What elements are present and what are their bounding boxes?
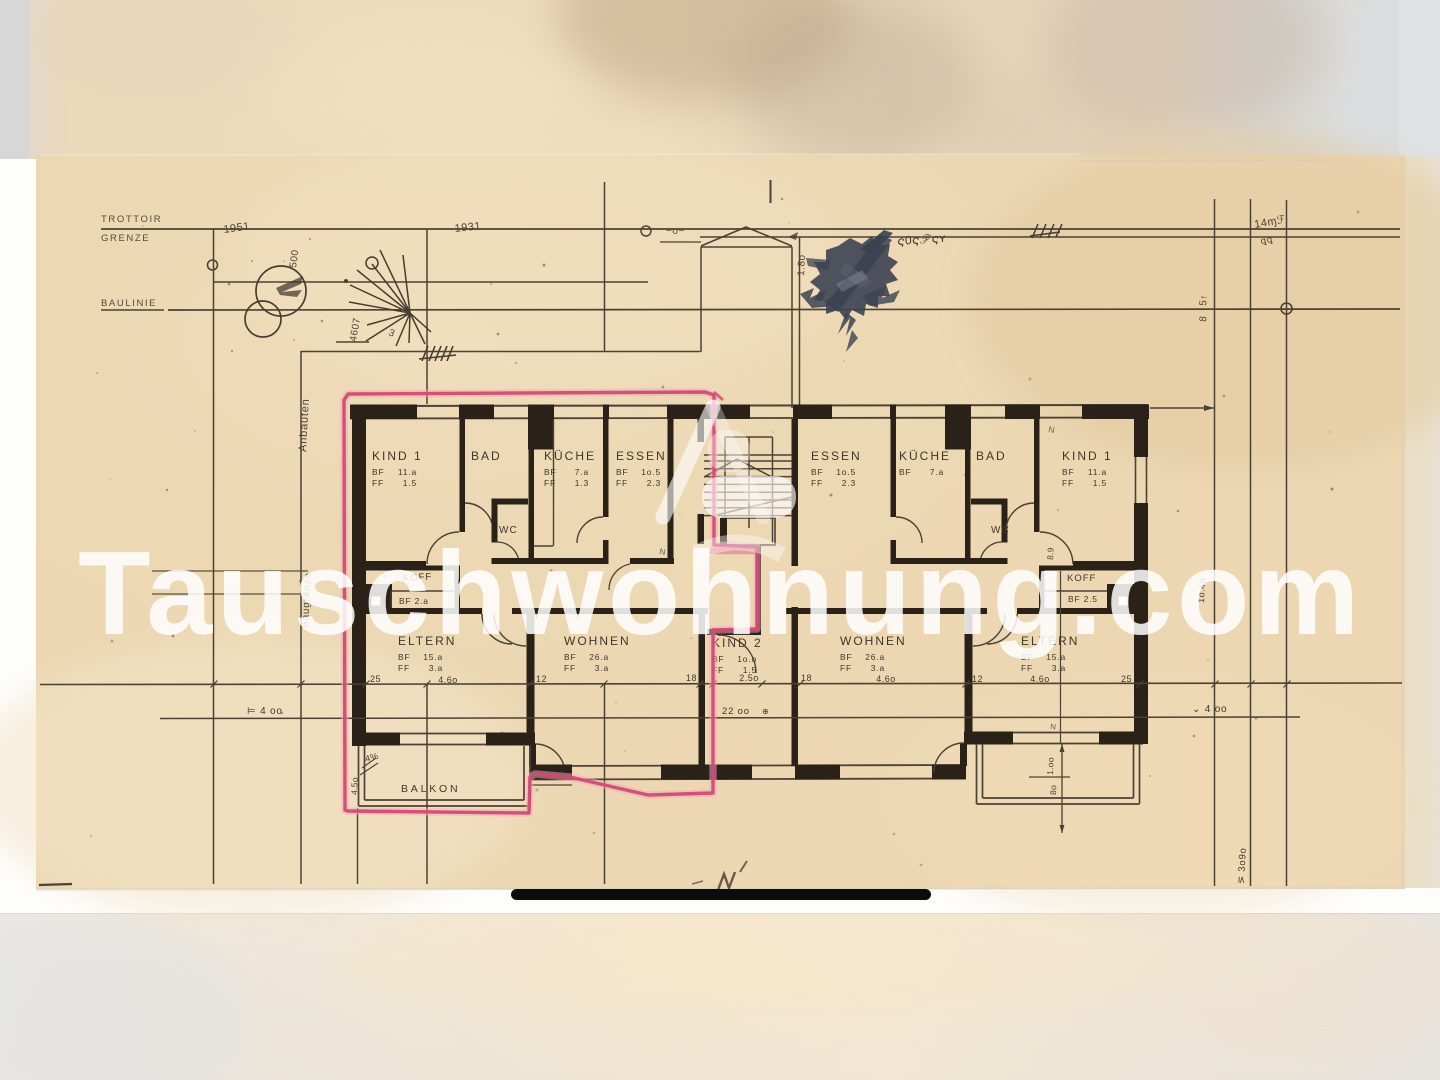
svg-text:BF: BF [899, 467, 911, 477]
svg-text:2.3: 2.3 [647, 478, 661, 488]
svg-text:Tauschwohnung.com: Tauschwohnung.com [78, 528, 1364, 660]
svg-text:⊨ 4 oo: ⊨ 4 oo [247, 706, 283, 717]
svg-text:25: 25 [370, 674, 381, 684]
svg-text:FF: FF [811, 478, 823, 488]
svg-text:1o.5: 1o.5 [836, 467, 856, 477]
svg-text:4.6o: 4.6o [438, 675, 458, 685]
svg-text:': ' [309, 237, 312, 248]
svg-text:BF: BF [616, 467, 628, 477]
svg-text:2.3: 2.3 [842, 478, 856, 488]
svg-text:1o.5: 1o.5 [641, 467, 661, 477]
svg-text:BALKON: BALKON [401, 783, 460, 795]
svg-text:4.5o: 4.5o [349, 777, 360, 795]
svg-text:FF: FF [372, 478, 384, 488]
svg-text:11.a: 11.a [398, 467, 417, 477]
svg-text:BAD: BAD [976, 449, 1007, 463]
svg-text:FF: FF [1021, 663, 1033, 673]
svg-text:N: N [1050, 722, 1057, 731]
svg-text:FF: FF [398, 663, 410, 673]
svg-text:7.a: 7.a [575, 467, 589, 477]
svg-text:BF: BF [811, 467, 823, 477]
svg-text:FF: FF [616, 478, 628, 488]
svg-text:3.a: 3.a [595, 663, 609, 673]
svg-text:3.a: 3.a [429, 663, 443, 673]
svg-text:8: 8 [1198, 315, 1209, 322]
svg-text:BAD: BAD [471, 449, 502, 463]
svg-text:1.5: 1.5 [403, 478, 417, 488]
svg-text:4.6o: 4.6o [876, 674, 896, 684]
svg-text:ꝗꝗ: ꝗꝗ [1260, 234, 1274, 246]
svg-text:1.8o: 1.8o [796, 254, 808, 276]
svg-text:22 oo: 22 oo [722, 706, 750, 717]
svg-text:3.a: 3.a [871, 663, 885, 673]
svg-text:25: 25 [1121, 674, 1132, 684]
svg-text:BF: BF [1062, 467, 1074, 477]
svg-text:7.a: 7.a [930, 467, 944, 477]
svg-text:8o: 8o [1048, 785, 1058, 795]
svg-text:4.6o: 4.6o [1030, 674, 1050, 684]
svg-text:−ο−: −ο− [666, 226, 685, 237]
svg-text:FF: FF [840, 663, 852, 673]
svg-text:FF: FF [1062, 478, 1074, 488]
svg-text:1.oo: 1.oo [1045, 757, 1056, 775]
svg-text:12: 12 [536, 674, 547, 684]
svg-text:KIND 1: KIND 1 [1062, 449, 1113, 463]
svg-text:BF: BF [544, 467, 556, 477]
svg-text:1.5: 1.5 [1093, 478, 1107, 488]
svg-text:KIND 1: KIND 1 [372, 449, 423, 463]
svg-text:2.5o: 2.5o [739, 673, 759, 683]
svg-text:KÜCHE: KÜCHE [544, 449, 596, 463]
svg-text:GRENZE: GRENZE [101, 233, 150, 244]
svg-text:⋝ 3o9o: ⋝ 3o9o [1236, 847, 1249, 884]
svg-text:ESSEN: ESSEN [811, 449, 862, 463]
svg-text:FF: FF [564, 663, 576, 673]
svg-text:BF: BF [372, 467, 384, 477]
svg-text:1.3: 1.3 [575, 478, 589, 488]
svg-text:3.a: 3.a [1052, 663, 1066, 673]
svg-text:12: 12 [972, 674, 983, 684]
svg-text:18: 18 [801, 673, 812, 683]
svg-text:BAULINIE: BAULINIE [101, 298, 157, 309]
svg-text:ESSEN: ESSEN [616, 449, 667, 463]
svg-text:5↑: 5↑ [1198, 294, 1210, 306]
svg-text:KÜCHE: KÜCHE [899, 449, 951, 463]
svg-text:18: 18 [686, 673, 697, 683]
svg-text:TROTTOIR: TROTTOIR [101, 214, 162, 225]
svg-text:FF: FF [544, 478, 556, 488]
svg-text:⌄ 4 oo: ⌄ 4 oo [1192, 704, 1227, 715]
svg-text:11.a: 11.a [1088, 467, 1107, 477]
svg-text:⊕: ⊕ [762, 707, 770, 716]
